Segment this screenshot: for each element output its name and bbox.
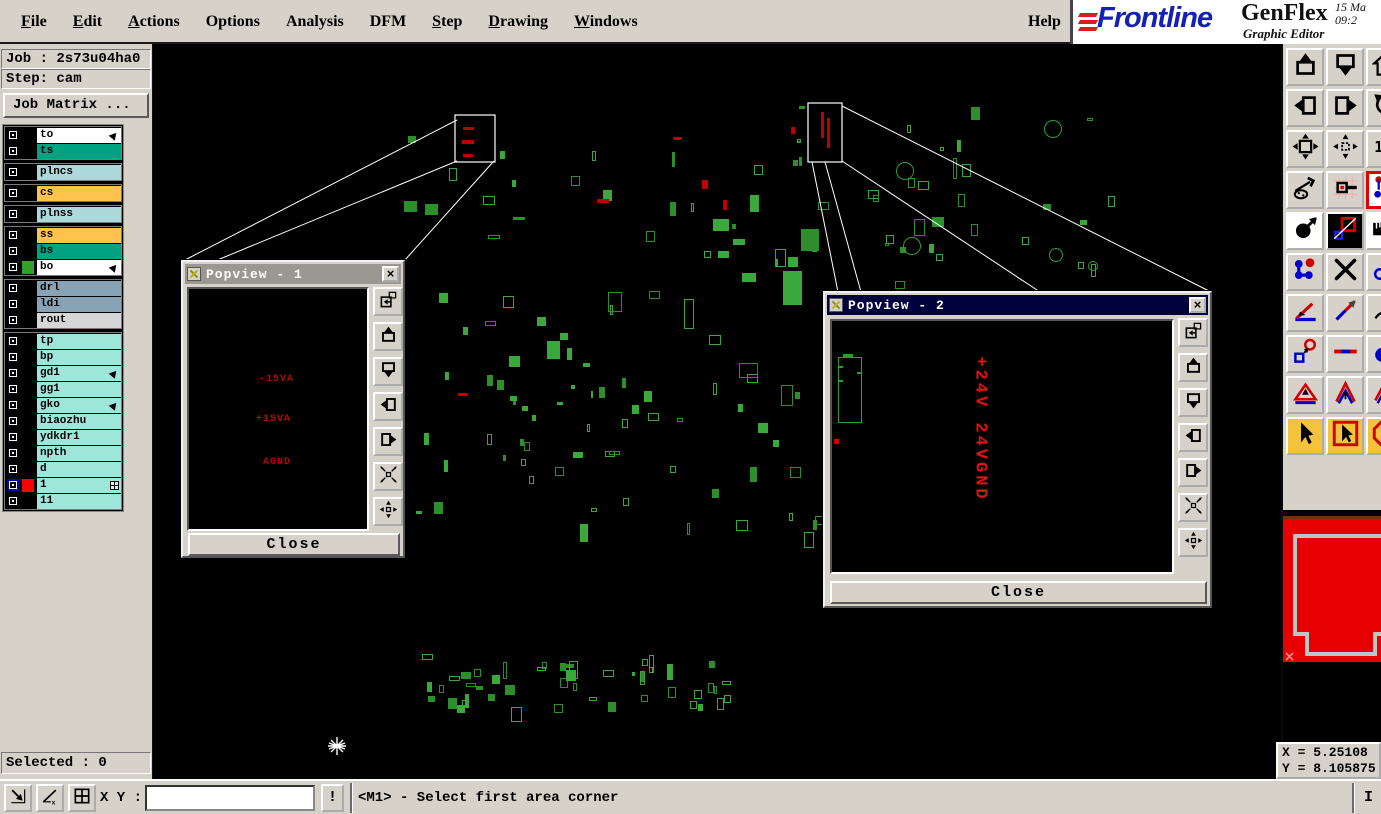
arrows-out-plus-icon (379, 500, 398, 524)
popview2-button-column (1176, 318, 1212, 563)
layer-visibility-checkbox[interactable] (7, 463, 19, 475)
pan-down-icon (379, 360, 398, 384)
layer-color-swatch[interactable] (22, 245, 34, 258)
layer-group: ssbsbo (4, 226, 122, 276)
home-icon (1372, 51, 1381, 83)
menu-item-options[interactable]: Options (193, 13, 273, 31)
pan-left-button[interactable] (1178, 423, 1208, 452)
pan-left-icon (1292, 92, 1319, 124)
layer-color-swatch[interactable] (22, 495, 34, 508)
popview-window-icon (829, 298, 843, 312)
layer-row-d[interactable]: d (5, 461, 121, 477)
menu-item-step[interactable]: Step (419, 13, 475, 31)
selected-count-label: Selected : 0 (1, 752, 151, 774)
product-name: GenFlex (1241, 0, 1328, 27)
svg-text:x: x (52, 799, 56, 806)
select-stop-mode-button[interactable] (1366, 417, 1381, 455)
layer-row-npth[interactable]: npth (5, 445, 121, 461)
popview-window-icon (187, 267, 201, 281)
pan-up-icon (1184, 356, 1203, 380)
highlight-net-button[interactable] (1366, 171, 1381, 209)
layer-color-swatch[interactable] (22, 298, 34, 311)
move-object-button[interactable] (1366, 253, 1381, 291)
layer-group: tpbpgd1gg1gkobiaozhuydkdr1npthd111 (4, 332, 122, 510)
expand-view-button[interactable] (373, 497, 403, 526)
sidebar: Job : 2s73u04ha0 Step: cam Job Matrix ..… (0, 44, 153, 779)
frontline-logo-bars-icon (1079, 13, 1097, 34)
layer-color-swatch[interactable] (22, 367, 34, 380)
layer-color-swatch[interactable] (22, 282, 34, 295)
net-name-label: AGND (263, 457, 291, 468)
layer-color-swatch[interactable] (22, 261, 34, 274)
center-view-button[interactable] (373, 462, 403, 491)
chevron-flat-icon (1372, 379, 1381, 411)
layer-color-swatch[interactable] (22, 447, 34, 460)
layer-color-swatch[interactable] (22, 431, 34, 444)
pan-right-icon (1184, 461, 1203, 485)
layer-name-label[interactable]: to (37, 128, 121, 143)
layer-row-ydkdr1[interactable]: ydkdr1 (5, 429, 121, 445)
area-zoom-button[interactable] (1326, 212, 1364, 250)
circle-link-icon (1372, 256, 1381, 288)
layer-row-drl[interactable]: drl (5, 280, 121, 296)
layer-group: plnss (4, 205, 122, 223)
layer-row-1[interactable]: 1 (5, 477, 121, 493)
popview1-window: Popview - 1 × -15VA+15VAAGND Close (181, 260, 405, 558)
menu-item-help[interactable]: Help (1018, 0, 1071, 44)
chevron-marker-button[interactable] (1326, 376, 1364, 414)
layer-name-label[interactable]: rout (37, 313, 121, 328)
layer-visibility-checkbox[interactable] (7, 335, 19, 347)
popview2-window: Popview - 2 × +24V 24VGND Close (823, 291, 1212, 608)
xy-coordinate-input[interactable] (145, 785, 315, 811)
layer-visibility-checkbox[interactable] (7, 314, 19, 326)
cursor-oct-icon (1372, 420, 1381, 452)
snap-grid-icon (1332, 174, 1359, 206)
layer-name-label[interactable]: cs (37, 186, 121, 201)
layer-color-swatch[interactable] (22, 145, 34, 158)
pan-up-icon (379, 325, 398, 349)
segment-icon (1332, 338, 1359, 370)
layer-color-swatch[interactable] (22, 479, 34, 492)
layer-color-swatch[interactable] (22, 383, 34, 396)
win-copy-icon (379, 290, 398, 314)
layer-visibility-checkbox[interactable] (7, 245, 19, 257)
layer-name-label[interactable]: ldi (37, 297, 121, 312)
component-outline (838, 357, 862, 423)
select-mode-button[interactable] (1286, 417, 1324, 455)
layer-name-label[interactable]: plnss (37, 207, 121, 222)
menu-bar: FileEditActionsOptionsAnalysisDFMStepDra… (0, 0, 1381, 44)
popview1-close-button[interactable]: Close (188, 533, 400, 556)
pan-view-up-button[interactable] (1286, 48, 1324, 86)
coordinate-y: Y = 8.105875 (1282, 761, 1379, 777)
pan-down-button[interactable] (1178, 388, 1208, 417)
layer-name-label[interactable]: gg1 (37, 382, 121, 397)
cursor-icon (1292, 420, 1319, 452)
measure-angle-button[interactable] (1286, 294, 1324, 332)
layer-group: cs (4, 184, 122, 202)
layer-group: plncs (4, 163, 122, 181)
job-name-label: Job : 2s73u04ha0 (1, 49, 151, 69)
svg-text:1:1: 1:1 (1374, 139, 1381, 156)
layer-row-11[interactable]: 11 (5, 493, 121, 509)
fill-tool-button[interactable] (1366, 335, 1381, 373)
layer-visibility-checkbox[interactable] (7, 187, 19, 199)
alert-button[interactable]: ! (321, 784, 344, 812)
divider (1352, 783, 1355, 813)
layer-row-rout[interactable]: rout (5, 312, 121, 328)
layer-name-label[interactable]: bs (37, 244, 121, 259)
layer-visibility-checkbox[interactable] (7, 479, 19, 491)
popview1-source-rect (455, 115, 495, 162)
layer-color-swatch[interactable] (22, 463, 34, 476)
layer-name-label[interactable]: tp (37, 334, 121, 349)
copy-view-button[interactable] (1178, 318, 1208, 347)
win-copy-icon (1184, 321, 1203, 345)
layer-visibility-checkbox[interactable] (7, 367, 19, 379)
layer-visibility-checkbox[interactable] (7, 145, 19, 157)
snap-mode-button[interactable] (4, 784, 32, 812)
layer-color-swatch[interactable] (22, 187, 34, 200)
unit-indicator: I (1364, 789, 1373, 806)
slope-icon: x (40, 786, 60, 811)
zoom-out-button[interactable] (1286, 130, 1324, 168)
layer-active-arrow-icon (109, 400, 120, 411)
layer-visibility-checkbox[interactable] (7, 415, 19, 427)
layer-color-swatch[interactable] (22, 335, 34, 348)
select-frame-mode-button[interactable] (1326, 417, 1364, 455)
right-toolbar-panel: 1:1 (1281, 44, 1381, 779)
layer-color-swatch[interactable] (22, 229, 34, 242)
layer-name-label[interactable]: drl (37, 281, 121, 296)
popview2-titlebar[interactable]: Popview - 2 × (827, 295, 1208, 315)
view-toolbar: 1:1 (1285, 47, 1381, 457)
snap-grid-button[interactable] (1326, 171, 1364, 209)
layer-visibility-checkbox[interactable] (7, 431, 19, 443)
copy-view-button[interactable] (373, 287, 403, 316)
menu-items: FileEditActionsOptionsAnalysisDFMStepDra… (8, 0, 651, 44)
diagonal-arrow-icon (8, 786, 28, 811)
genflex-app: FileEditActionsOptionsAnalysisDFMStepDra… (0, 0, 1381, 814)
pan-view-down-button[interactable] (1326, 48, 1364, 86)
menu-item-actions[interactable]: Actions (115, 13, 193, 31)
layer-name-label[interactable]: ts (37, 144, 121, 159)
coordinate-readout: X = 5.25108 Y = 8.105875 (1276, 742, 1381, 779)
layer-color-swatch[interactable] (22, 415, 34, 428)
layer-row-tp[interactable]: tp (5, 333, 121, 349)
popview1-title: Popview - 1 (206, 267, 382, 282)
layer-name-label[interactable]: gko (37, 398, 121, 413)
layer-row-to[interactable]: to (5, 127, 121, 143)
layer-visibility-checkbox[interactable] (7, 229, 19, 241)
pan-down-icon (1184, 391, 1203, 415)
layer-color-swatch[interactable] (22, 129, 34, 142)
origin-marker-button[interactable] (1286, 335, 1324, 373)
pan-right-icon (379, 430, 398, 454)
net-name-label: -15VA (259, 374, 294, 385)
layer-visibility-checkbox[interactable] (7, 261, 19, 273)
setup-tools-button[interactable] (1286, 171, 1324, 209)
delete-x-icon (1332, 256, 1359, 288)
pan-up-button[interactable] (1178, 353, 1208, 382)
layer-name-label[interactable]: ss (37, 228, 121, 243)
popview2-source-rect (808, 103, 842, 162)
layer-visibility-checkbox[interactable] (7, 208, 19, 220)
popview2-title: Popview - 2 (848, 298, 1189, 313)
chevron-up-icon (1332, 379, 1359, 411)
prompt-message: <M1> - Select first area corner (358, 790, 618, 806)
pan-view-left-button[interactable] (1286, 89, 1324, 127)
status-bar: x X Y : ! <M1> - Select first area corne… (0, 779, 1381, 814)
arrows-in-diag-icon (379, 465, 398, 489)
layer-name-label[interactable]: bp (37, 350, 121, 365)
job-matrix-button[interactable]: Job Matrix ... (3, 93, 149, 118)
layer-visibility-checkbox[interactable] (7, 447, 19, 459)
net-highlight-icon (1372, 174, 1381, 206)
layer-color-swatch[interactable] (22, 351, 34, 364)
measure-line-icon (1332, 297, 1359, 329)
pan-view-right-button[interactable] (1326, 89, 1364, 127)
layer-visibility-checkbox[interactable] (7, 399, 19, 411)
home-view-button[interactable] (1366, 48, 1381, 86)
layer-row-gg1[interactable]: gg1 (5, 381, 121, 397)
origin-starburst-icon (328, 737, 346, 755)
pan-right-button[interactable] (373, 427, 403, 456)
date-time-fragment: 15 Ma 09:2 (1335, 1, 1366, 27)
layer-row-ss[interactable]: ss (5, 227, 121, 243)
layer-visibility-checkbox[interactable] (7, 383, 19, 395)
arrows-out-icon (1292, 133, 1319, 165)
layer-visibility-checkbox[interactable] (7, 129, 19, 141)
net-connect-button[interactable] (1286, 253, 1324, 291)
layer-name-label[interactable]: biaozhu (37, 414, 121, 429)
measure-ruler-button[interactable] (1366, 212, 1381, 250)
layer-row-bs[interactable]: bs (5, 243, 121, 259)
select-circle-button[interactable] (1286, 212, 1324, 250)
grid-toggle-button[interactable] (68, 784, 96, 812)
popview2-close-icon[interactable]: × (1189, 297, 1206, 313)
ruler-icon (1372, 215, 1381, 247)
step-name-label: Step: cam (1, 69, 151, 89)
pan-down-button[interactable] (373, 357, 403, 386)
layer-active-arrow-icon (109, 262, 120, 273)
reroute-button[interactable] (1366, 294, 1381, 332)
coords-mode-button[interactable]: x (36, 784, 64, 812)
center-view-button[interactable] (1178, 493, 1208, 522)
layer-name-label[interactable]: gd1 (37, 366, 121, 381)
layer-visibility-checkbox[interactable] (7, 495, 19, 507)
pan-right-button[interactable] (1178, 458, 1208, 487)
one-to-one-icon: 1:1 (1372, 133, 1381, 165)
cursor-box-icon (1332, 420, 1359, 452)
zoom-one-to-one-button[interactable]: 1:1 (1366, 130, 1381, 168)
layer-row-biaozhu[interactable]: biaozhu (5, 413, 121, 429)
layer-row-bp[interactable]: bp (5, 349, 121, 365)
curve-arrow-icon (1372, 297, 1381, 329)
layer-row-ldi[interactable]: ldi (5, 296, 121, 312)
layer-name-label[interactable]: ydkdr1 (37, 430, 121, 445)
window-grid-icon (72, 786, 92, 811)
angle-measure-icon (1292, 297, 1319, 329)
layer-row-gd1[interactable]: gd1 (5, 365, 121, 381)
layer-row-bo[interactable]: bo (5, 259, 121, 275)
popview1-canvas[interactable]: -15VA+15VAAGND (187, 287, 369, 531)
triangle-marker-button[interactable] (1286, 376, 1324, 414)
popview1-close-icon[interactable]: × (382, 266, 399, 282)
menu-item-edit[interactable]: Edit (60, 13, 115, 31)
layer-group: drlldirout (4, 279, 122, 329)
layer-group: tots (4, 126, 122, 160)
layer-name-label[interactable]: bo (37, 260, 121, 275)
coordinate-x: X = 5.25108 (1282, 745, 1379, 761)
rotate-left-icon (1372, 92, 1381, 124)
popview2-canvas[interactable]: +24V 24VGND (830, 319, 1174, 574)
circle-fill-tool-icon (1372, 338, 1381, 370)
popview2-close-button[interactable]: Close (830, 581, 1207, 604)
layer-name-label[interactable]: 1 (37, 478, 121, 493)
layer-name-label[interactable]: npth (37, 446, 121, 461)
net-dots-icon (1292, 256, 1319, 288)
arrows-in-diag-icon (1184, 496, 1203, 520)
zoom-in-button[interactable] (1326, 130, 1364, 168)
pan-left-icon (379, 395, 398, 419)
pan-up-icon (1292, 51, 1319, 83)
pan-up-button[interactable] (373, 322, 403, 351)
layer-row-ts[interactable]: ts (5, 143, 121, 159)
frontline-logo: Frontline (1097, 2, 1212, 35)
product-subtitle: Graphic Editor (1243, 26, 1324, 42)
main-canvas[interactable]: Popview - 1 × -15VA+15VAAGND Close Popvi… (153, 44, 1281, 779)
layer-color-swatch[interactable] (22, 166, 34, 179)
layer-color-swatch[interactable] (22, 208, 34, 221)
layer-name-label[interactable]: d (37, 462, 121, 477)
tools-icon (1292, 174, 1319, 206)
chevron-flat-marker-button[interactable] (1366, 376, 1381, 414)
measure-distance-button[interactable] (1326, 294, 1364, 332)
circle-arrow-icon (1292, 215, 1319, 247)
rotate-view-button[interactable] (1366, 89, 1381, 127)
layer-visibility-checkbox[interactable] (7, 166, 19, 178)
popview1-button-column (371, 287, 407, 532)
menu-item-analysis[interactable]: Analysis (273, 13, 357, 31)
xy-label: X Y : (100, 790, 142, 806)
menu-item-dfm[interactable]: DFM (357, 13, 419, 31)
menu-item-windows[interactable]: Windows (561, 13, 651, 31)
divider (350, 783, 353, 813)
layer-visibility-checkbox[interactable] (7, 351, 19, 363)
arrows-out-small-icon (1332, 133, 1359, 165)
layer-name-label[interactable]: 11 (37, 494, 121, 509)
layer-color-swatch[interactable] (22, 399, 34, 412)
layer-color-swatch[interactable] (22, 314, 34, 327)
layer-list: totsplncscsplnssssbsbodrlldirouttpbpgd1g… (2, 124, 124, 512)
layer-row-cs[interactable]: cs (5, 185, 121, 201)
arrows-out-plus-icon (1184, 531, 1203, 555)
pan-left-button[interactable] (373, 392, 403, 421)
layer-row-gko[interactable]: gko (5, 397, 121, 413)
pan-right-icon (1332, 92, 1359, 124)
layer-visibility-checkbox[interactable] (7, 282, 19, 294)
menu-item-file[interactable]: File (8, 13, 60, 31)
layer-row-plncs[interactable]: plncs (5, 164, 121, 180)
layer-active-arrow-icon (109, 130, 120, 141)
pan-down-icon (1332, 51, 1359, 83)
pad-marker (834, 439, 839, 444)
menu-item-drawing[interactable]: Drawing (475, 13, 561, 31)
area-dark-icon (1332, 215, 1359, 247)
popview1-titlebar[interactable]: Popview - 1 × (185, 264, 401, 284)
layer-active-arrow-icon (109, 368, 120, 379)
brand-panel: Frontline GenFlex Graphic Editor 15 Ma 0… (1070, 0, 1381, 44)
expand-view-button[interactable] (1178, 528, 1208, 557)
layer-row-plnss[interactable]: plnss (5, 206, 121, 222)
circle-square-icon (1292, 338, 1319, 370)
board-overview-preview[interactable] (1283, 510, 1381, 744)
delete-object-button[interactable] (1326, 253, 1364, 291)
pan-left-icon (1184, 426, 1203, 450)
net-name-label: +24V 24VGND (971, 356, 990, 501)
layer-grid-icon (110, 481, 119, 490)
layer-visibility-checkbox[interactable] (7, 298, 19, 310)
triangle-up-icon (1292, 379, 1319, 411)
segment-tool-button[interactable] (1326, 335, 1364, 373)
layer-name-label[interactable]: plncs (37, 165, 121, 180)
net-name-label: +15VA (256, 414, 291, 425)
